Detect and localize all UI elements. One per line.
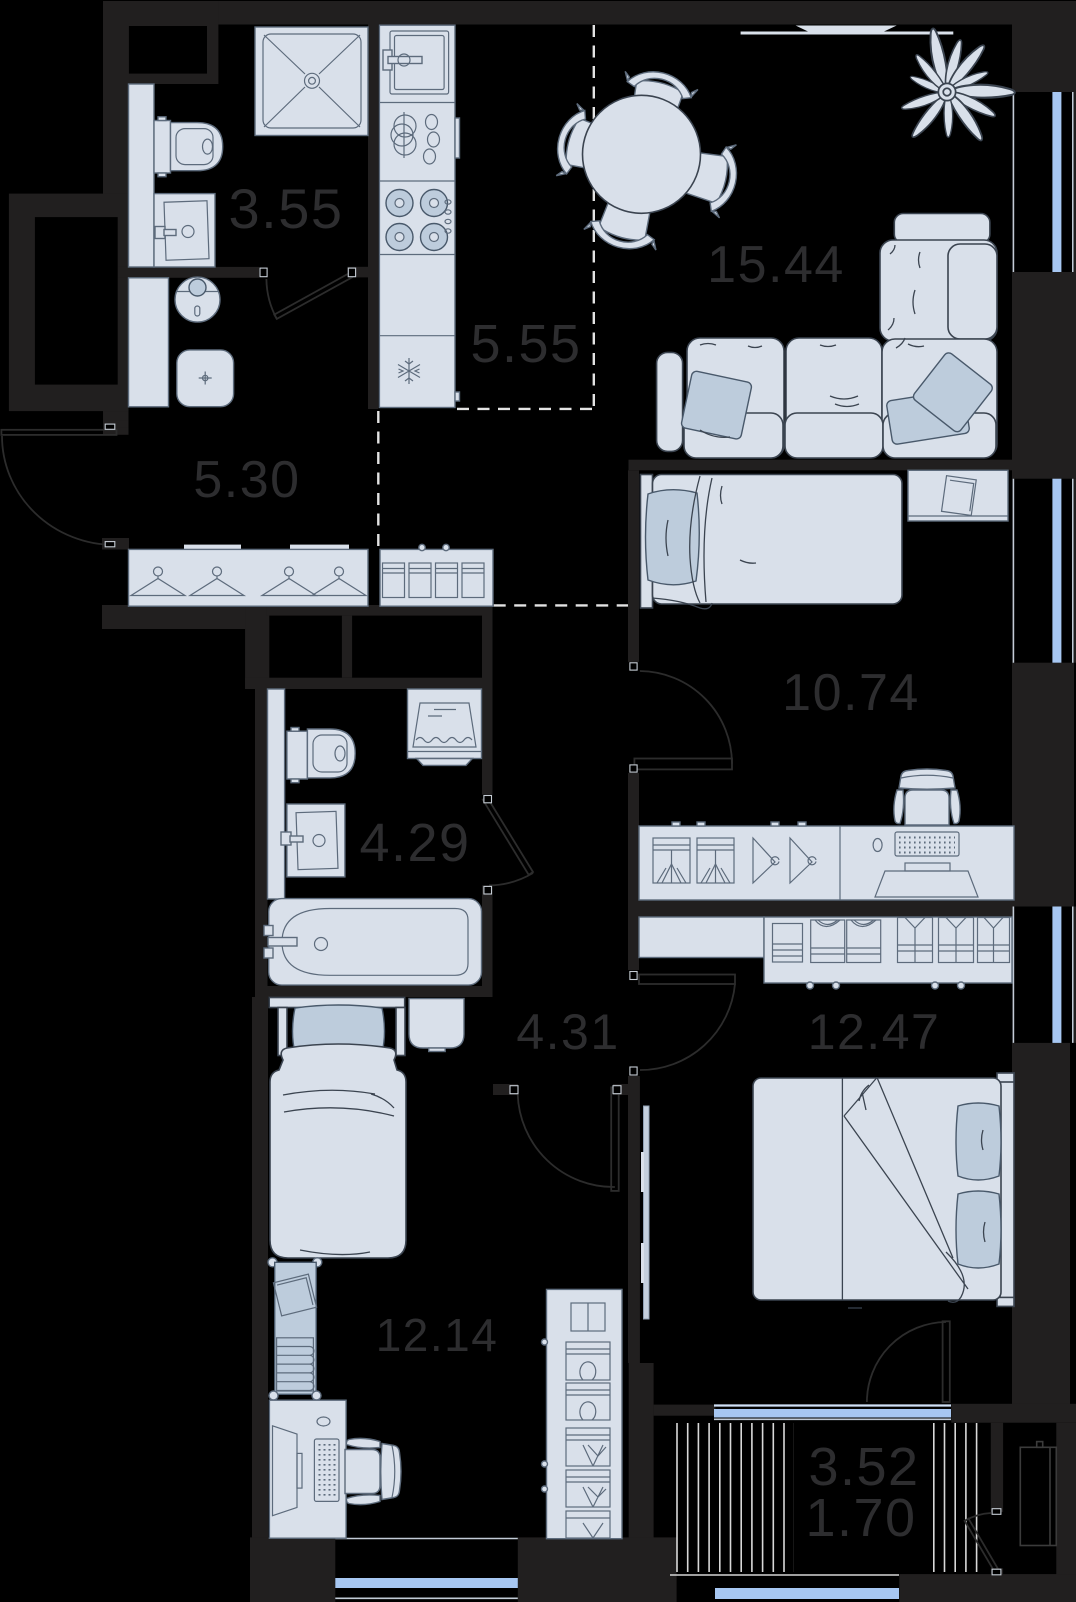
svg-text:4.31: 4.31 <box>516 1004 619 1060</box>
svg-text:10.74: 10.74 <box>782 664 920 722</box>
svg-text:3.55: 3.55 <box>229 177 344 240</box>
svg-text:1.70: 1.70 <box>805 1488 916 1548</box>
svg-text:12.47: 12.47 <box>808 1004 941 1060</box>
svg-text:4.29: 4.29 <box>359 813 470 873</box>
svg-text:5.55: 5.55 <box>470 314 581 374</box>
svg-text:12.14: 12.14 <box>376 1309 499 1361</box>
svg-text:15.44: 15.44 <box>707 236 845 294</box>
svg-text:5.30: 5.30 <box>193 451 300 509</box>
